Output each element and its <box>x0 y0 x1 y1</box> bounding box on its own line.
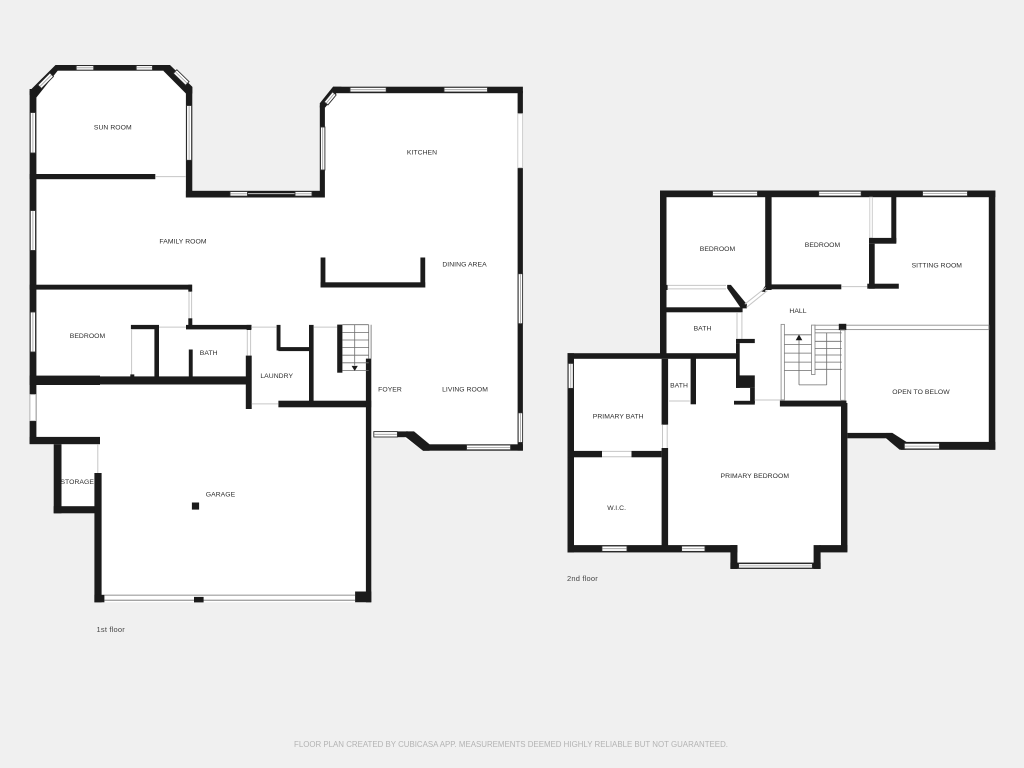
svg-text:2nd floor: 2nd floor <box>567 574 598 583</box>
svg-text:SITTING ROOM: SITTING ROOM <box>912 263 963 270</box>
svg-text:OPEN TO BELOW: OPEN TO BELOW <box>892 389 950 396</box>
svg-text:BATH: BATH <box>200 350 218 357</box>
svg-text:LAUNDRY: LAUNDRY <box>260 373 293 380</box>
svg-text:SUN ROOM: SUN ROOM <box>94 125 132 132</box>
svg-text:BEDROOM: BEDROOM <box>70 333 106 340</box>
svg-text:W.I.C.: W.I.C. <box>607 505 626 512</box>
svg-text:GARAGE: GARAGE <box>206 492 236 499</box>
svg-text:BEDROOM: BEDROOM <box>805 242 841 249</box>
svg-text:BATH: BATH <box>670 383 688 390</box>
svg-text:1st floor: 1st floor <box>97 625 126 634</box>
svg-text:BATH: BATH <box>694 326 712 333</box>
svg-text:FLOOR PLAN CREATED BY CUBICASA: FLOOR PLAN CREATED BY CUBICASA APP. MEAS… <box>294 740 728 749</box>
svg-text:FOYER: FOYER <box>378 387 402 394</box>
svg-text:PRIMARY BATH: PRIMARY BATH <box>593 414 644 421</box>
svg-text:STORAGE: STORAGE <box>60 479 94 486</box>
svg-text:PRIMARY BEDROOM: PRIMARY BEDROOM <box>721 473 790 480</box>
svg-text:DINING AREA: DINING AREA <box>442 262 487 269</box>
svg-text:LIVING ROOM: LIVING ROOM <box>442 387 488 394</box>
svg-text:KITCHEN: KITCHEN <box>407 150 437 157</box>
svg-text:BEDROOM: BEDROOM <box>700 246 736 253</box>
svg-text:HALL: HALL <box>789 308 806 315</box>
svg-text:FAMILY ROOM: FAMILY ROOM <box>159 239 206 246</box>
